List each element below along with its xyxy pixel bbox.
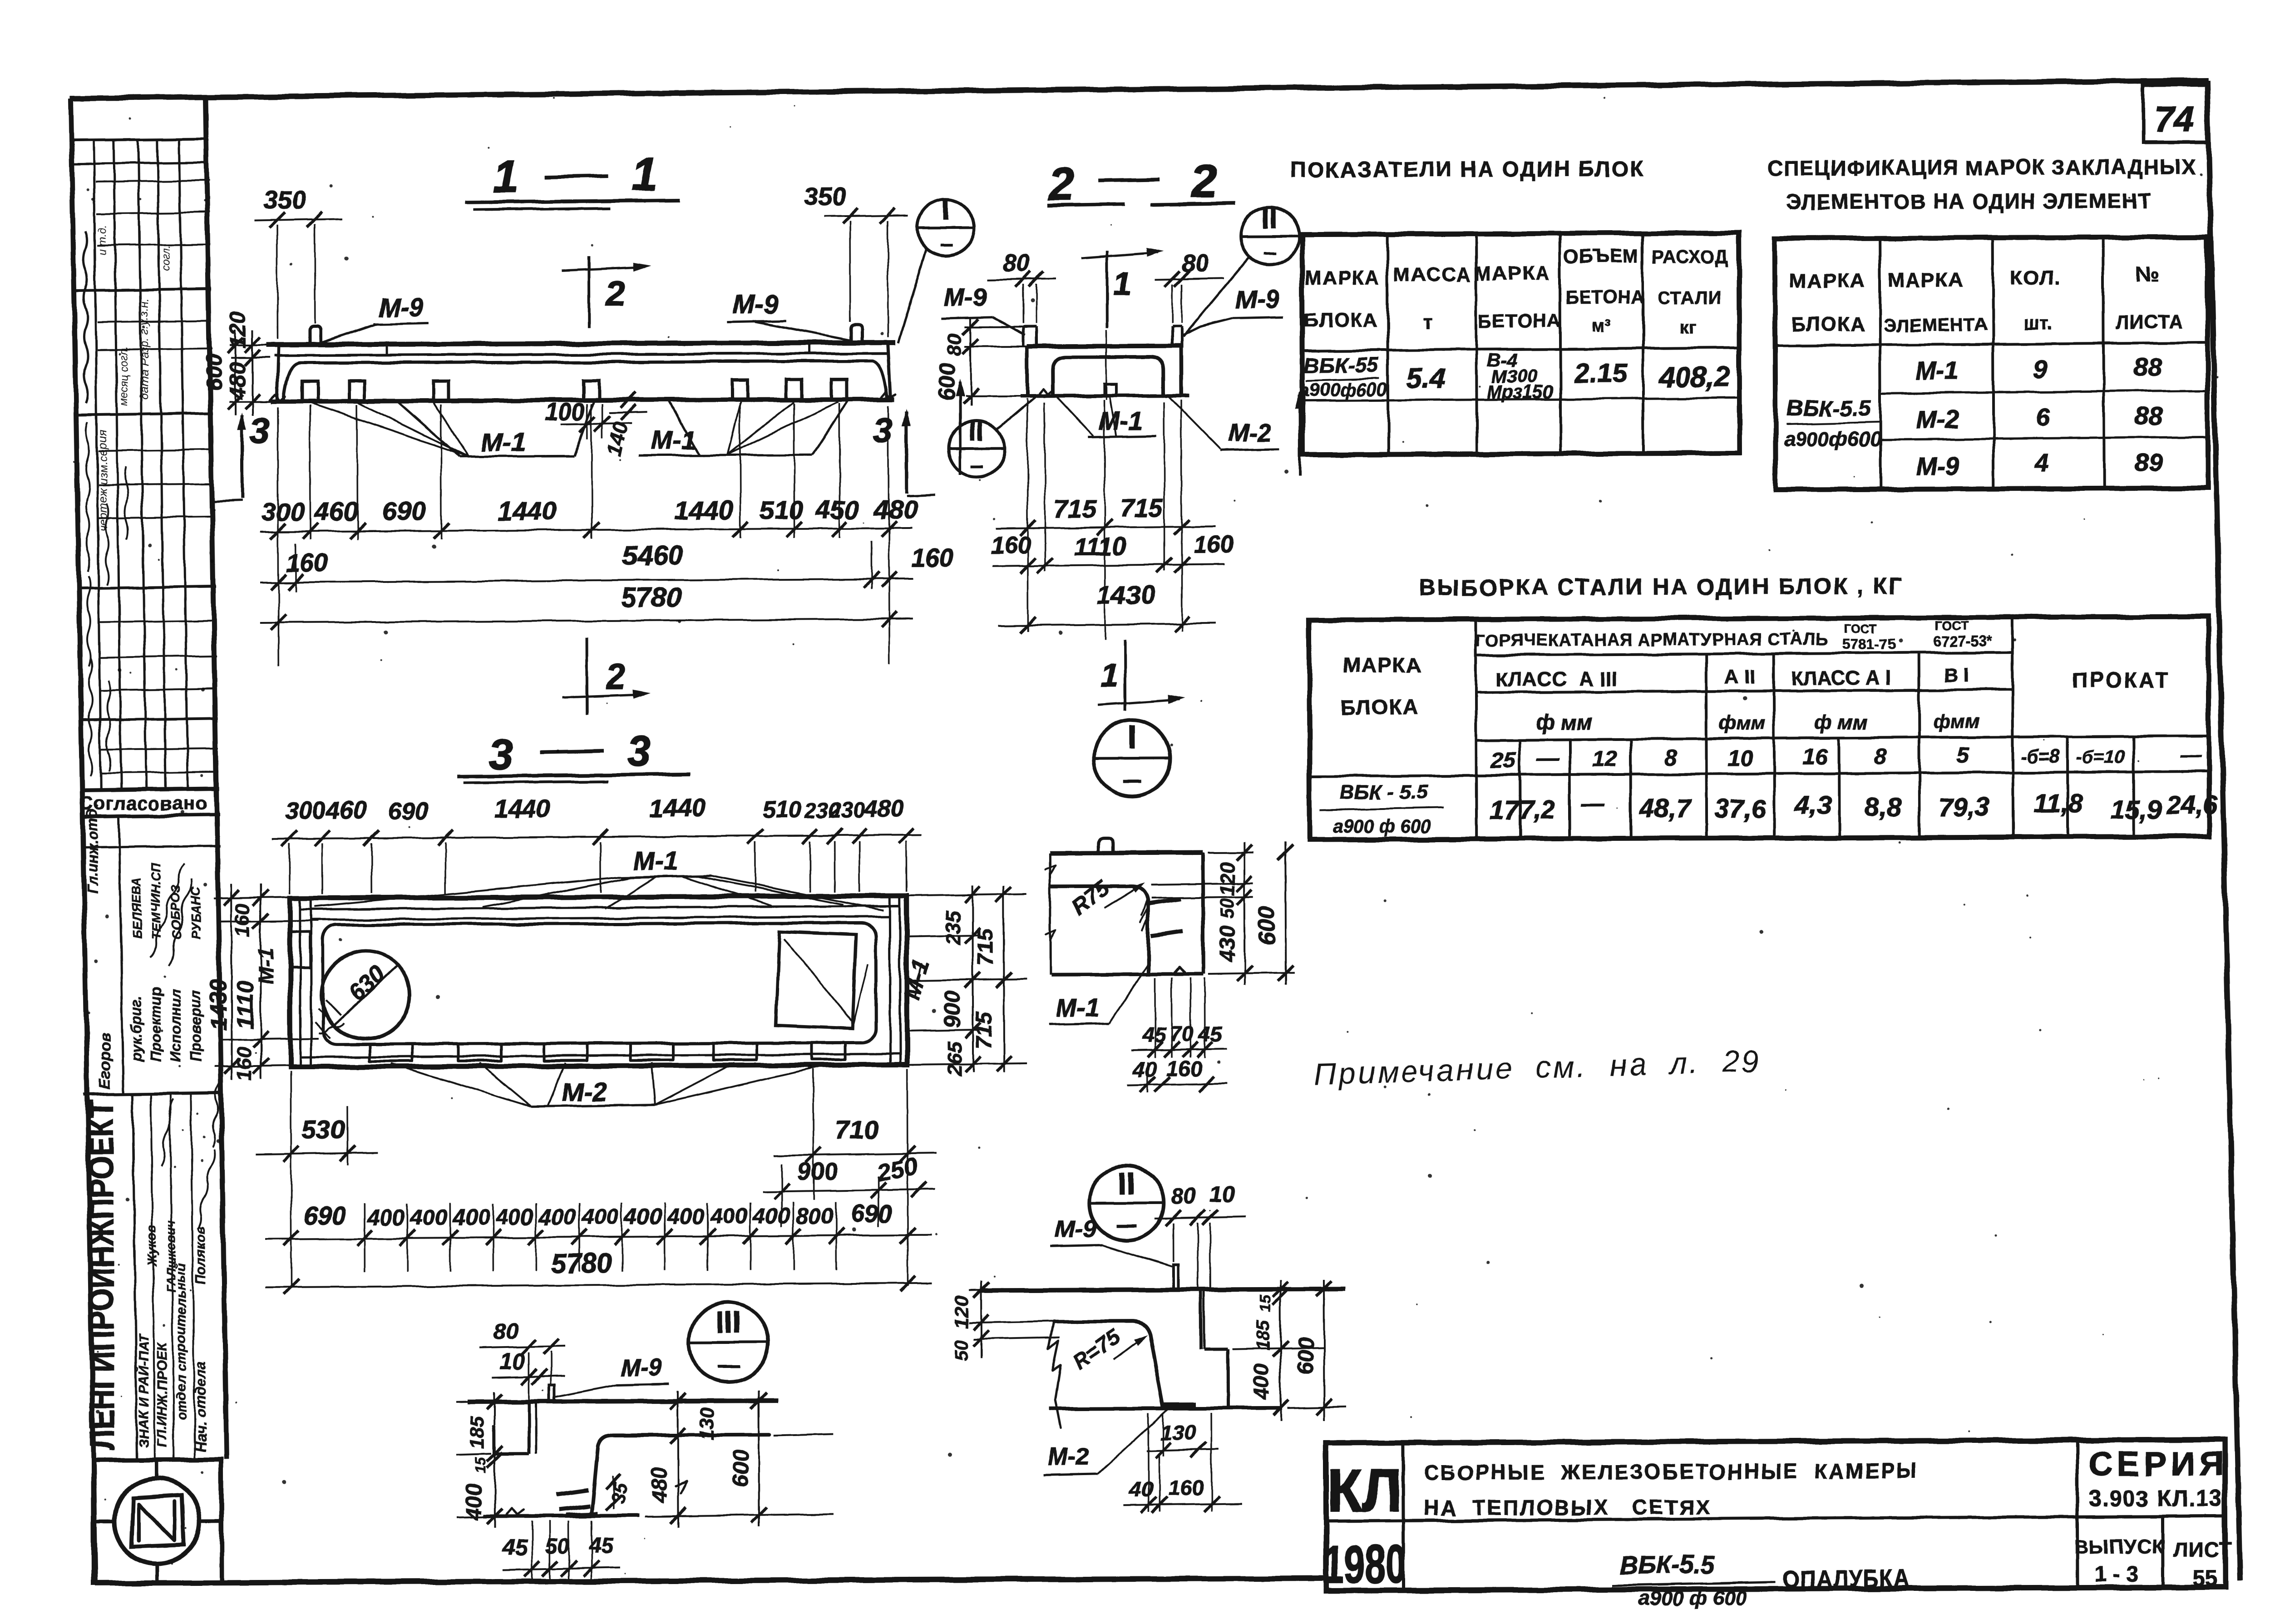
svg-text:400: 400 <box>1249 1364 1273 1400</box>
svg-text:160: 160 <box>233 1046 256 1081</box>
svg-text:М-9: М-9 <box>1236 286 1279 314</box>
svg-text:и т.д.: и т.д. <box>96 225 109 255</box>
svg-text:9: 9 <box>2033 355 2047 383</box>
svg-text:СБОРНЫЕ ЖЕЛЕЗОБЕТОННЫЕ КАМЕР: СБОРНЫЕ ЖЕЛЕЗОБЕТОННЫЕ КАМЕРЫ <box>1423 1459 1919 1484</box>
svg-text:СПЕЦИФИКАЦИЯ МАРОК ЗАКЛАДНЫХ: СПЕЦИФИКАЦИЯ МАРОК ЗАКЛАДНЫХ <box>1768 155 2196 180</box>
svg-text:40: 40 <box>1133 1057 1157 1081</box>
svg-text:600: 600 <box>934 363 959 400</box>
svg-text:185: 185 <box>466 1416 488 1449</box>
svg-text:45: 45 <box>502 1535 528 1560</box>
svg-text:460: 460 <box>314 498 358 527</box>
svg-text:89: 89 <box>2135 448 2163 476</box>
svg-text:160: 160 <box>1166 1056 1202 1081</box>
svg-text:ЭЛЕМЕНТОВ НА ОДИН ЭЛЕМЕНТ: ЭЛЕМЕНТОВ НА ОДИН ЭЛЕМЕНТ <box>1786 188 2152 213</box>
svg-text:фмм: фмм <box>1719 712 1765 734</box>
svg-text:БЕТОНА: БЕТОНА <box>1566 287 1645 308</box>
svg-text:Поляков: Поляков <box>193 1226 208 1284</box>
svg-text:М-1: М-1 <box>1056 993 1100 1022</box>
svg-text:79,3: 79,3 <box>1939 793 1990 822</box>
svg-text:5: 5 <box>1957 743 1969 768</box>
svg-text:715: 715 <box>973 928 998 966</box>
svg-text:СОБРОЗ: СОБРОЗ <box>169 885 183 939</box>
svg-text:КЛ: КЛ <box>1327 1457 1402 1524</box>
svg-text:1: 1 <box>632 148 657 200</box>
svg-text:м³: м³ <box>1592 316 1611 336</box>
svg-text:37,6: 37,6 <box>1715 795 1767 824</box>
svg-text:800: 800 <box>796 1204 833 1229</box>
svg-text:М-9: М-9 <box>733 290 778 319</box>
svg-text:55: 55 <box>2193 1567 2217 1591</box>
svg-text:СТАЛИ: СТАЛИ <box>1658 288 1722 308</box>
svg-text:М-9: М-9 <box>1916 452 1959 480</box>
svg-text:25: 25 <box>1490 748 1516 773</box>
svg-text:630: 630 <box>344 960 390 1006</box>
svg-text:400: 400 <box>410 1205 447 1230</box>
svg-text:1440: 1440 <box>675 496 733 525</box>
svg-text:88: 88 <box>2134 353 2162 381</box>
svg-text:1110: 1110 <box>232 980 258 1029</box>
svg-text:—: — <box>1536 745 1559 770</box>
svg-text:600: 600 <box>202 354 227 391</box>
svg-text:ЛИСТ: ЛИСТ <box>2173 1538 2232 1561</box>
svg-text:месяц согл.: месяц согл. <box>118 346 130 406</box>
svg-text:600: 600 <box>1293 1337 1318 1374</box>
svg-text:80: 80 <box>1171 1184 1196 1209</box>
svg-text:Примечание см. на л. 29: Примечание см. на л. 29 <box>1313 1044 1762 1092</box>
svg-text:ВЫПУСК: ВЫПУСК <box>2074 1535 2165 1558</box>
svg-text:Нач. отдела: Нач. отдела <box>192 1361 209 1452</box>
svg-text:ф мм: ф мм <box>1536 710 1593 734</box>
svg-text:3: 3 <box>627 727 651 775</box>
svg-text:ЗНАК И РАЙ-ПАТ: ЗНАК И РАЙ-ПАТ <box>135 1333 152 1448</box>
svg-text:50: 50 <box>1217 898 1238 919</box>
svg-text:I: I <box>1127 719 1136 755</box>
svg-text:74: 74 <box>2154 99 2194 139</box>
svg-text:БЕТОНА: БЕТОНА <box>1479 310 1561 331</box>
svg-text:Проверил: Проверил <box>187 990 204 1061</box>
svg-text:88: 88 <box>2135 402 2163 430</box>
svg-text:Гл.инж.отд: Гл.инж.отд <box>84 809 101 894</box>
svg-text:а900ф600: а900ф600 <box>1784 427 1881 451</box>
svg-text:R=75: R=75 <box>1068 1324 1125 1374</box>
svg-text:ПОКАЗАТЕЛИ НА ОДИН БЛОК: ПОКАЗАТЕЛИ НА ОДИН БЛОК <box>1291 157 1645 183</box>
svg-text:А II: А II <box>1724 666 1756 688</box>
svg-text:4: 4 <box>2034 449 2049 477</box>
svg-text:690: 690 <box>304 1202 346 1230</box>
svg-text:2.15: 2.15 <box>1574 358 1628 388</box>
svg-text:М-2: М-2 <box>562 1078 607 1107</box>
svg-text:400: 400 <box>538 1204 576 1229</box>
svg-text:ф мм: ф мм <box>1814 711 1868 734</box>
svg-text:КЛАСС А III: КЛАСС А III <box>1495 668 1618 691</box>
svg-text:-б=8: -б=8 <box>2021 745 2060 766</box>
svg-text:БЛОКА: БЛОКА <box>1791 313 1866 336</box>
svg-text:130: 130 <box>1160 1421 1196 1445</box>
svg-text:400: 400 <box>495 1204 533 1229</box>
svg-text:160: 160 <box>1194 531 1234 558</box>
svg-text:М-9: М-9 <box>944 283 987 311</box>
svg-text:120: 120 <box>951 1296 972 1328</box>
svg-text:400: 400 <box>710 1204 747 1229</box>
svg-text:400: 400 <box>367 1205 405 1230</box>
svg-text:120: 120 <box>1215 862 1239 896</box>
svg-text:15: 15 <box>1257 1294 1274 1312</box>
svg-text:11,8: 11,8 <box>2034 789 2083 818</box>
svg-text:10: 10 <box>1728 746 1753 771</box>
svg-text:160: 160 <box>286 549 328 577</box>
svg-text:45: 45 <box>588 1533 614 1558</box>
svg-text:МАССА: МАССА <box>1394 263 1472 286</box>
svg-text:М-9: М-9 <box>1055 1215 1097 1242</box>
svg-text:3.903 КЛ.13: 3.903 КЛ.13 <box>2088 1486 2223 1511</box>
svg-text:шт.: шт. <box>2023 312 2053 334</box>
svg-text:50: 50 <box>546 1534 570 1558</box>
svg-text:РУБАНС: РУБАНС <box>189 886 203 939</box>
svg-text:70: 70 <box>1170 1022 1194 1046</box>
svg-text:II: II <box>1118 1166 1135 1201</box>
svg-text:10: 10 <box>500 1349 525 1374</box>
svg-text:48,7: 48,7 <box>1639 794 1693 823</box>
svg-text:400: 400 <box>581 1204 619 1229</box>
svg-text:рук.бриг.: рук.бриг. <box>128 995 145 1062</box>
svg-text:Жуков: Жуков <box>144 1225 158 1267</box>
svg-text:МАРКА: МАРКА <box>1305 267 1381 289</box>
svg-text:690: 690 <box>850 1199 893 1228</box>
svg-text:Егоров: Егоров <box>96 1033 113 1089</box>
svg-text:265: 265 <box>943 1041 966 1076</box>
svg-text:1440: 1440 <box>649 794 706 822</box>
svg-text:М-1: М-1 <box>1099 407 1143 435</box>
svg-text:40: 40 <box>1129 1477 1153 1501</box>
svg-text:Мрз150: Мрз150 <box>1487 381 1554 403</box>
svg-text:900: 900 <box>797 1159 838 1185</box>
svg-text:6: 6 <box>2036 403 2050 431</box>
svg-text:R75: R75 <box>1066 875 1114 920</box>
svg-text:ПРОКАТ: ПРОКАТ <box>2073 668 2171 692</box>
svg-text:600: 600 <box>1253 906 1279 945</box>
svg-text:400: 400 <box>624 1204 661 1229</box>
svg-text:ГОСТ: ГОСТ <box>1934 618 1968 632</box>
svg-text:5781-75: 5781-75 <box>1842 636 1896 652</box>
svg-text:50: 50 <box>951 1339 972 1360</box>
svg-text:185: 185 <box>1253 1319 1273 1351</box>
svg-text:530: 530 <box>301 1115 345 1144</box>
svg-text:ВЫБОРКА СТАЛИ НА ОДИН БЛОК , К: ВЫБОРКА СТАЛИ НА ОДИН БЛОК , КГ <box>1419 573 1903 601</box>
svg-text:5780: 5780 <box>551 1248 612 1279</box>
svg-text:М-1: М-1 <box>481 428 526 457</box>
svg-text:М-9: М-9 <box>379 293 424 322</box>
svg-text:а900 ф 600: а900 ф 600 <box>1638 1586 1747 1610</box>
svg-text:т: т <box>1423 311 1433 333</box>
svg-text:1440: 1440 <box>498 497 557 526</box>
svg-text:300: 300 <box>285 797 326 824</box>
svg-text:Исполнил: Исполнил <box>167 989 184 1061</box>
svg-text:510: 510 <box>763 796 802 822</box>
svg-text:5780: 5780 <box>621 582 681 613</box>
svg-text:4,3: 4,3 <box>1795 791 1832 820</box>
svg-text:Проектир: Проектир <box>147 987 164 1061</box>
svg-text:400: 400 <box>452 1205 490 1230</box>
svg-text:ЭЛЕМЕНТА: ЭЛЕМЕНТА <box>1884 315 1988 336</box>
svg-text:160: 160 <box>990 532 1031 559</box>
svg-text:1 - 3: 1 - 3 <box>2094 1563 2138 1587</box>
svg-text:ГАЛшкевич: ГАЛшкевич <box>163 1221 178 1293</box>
svg-text:III: III <box>716 1305 741 1339</box>
svg-text:М-1: М-1 <box>633 847 679 876</box>
svg-text:300: 300 <box>261 498 305 527</box>
svg-text:235: 235 <box>942 910 965 945</box>
svg-text:715: 715 <box>1054 495 1096 523</box>
svg-text:ВБК-5.5: ВБК-5.5 <box>1619 1550 1715 1579</box>
svg-text:2: 2 <box>1190 155 1217 207</box>
svg-text:120: 120 <box>226 311 251 348</box>
svg-text:408,2: 408,2 <box>1658 361 1730 393</box>
svg-text:М-1: М-1 <box>651 426 696 455</box>
svg-text:80: 80 <box>943 333 966 356</box>
svg-text:350: 350 <box>804 183 846 211</box>
svg-text:8: 8 <box>1665 745 1678 770</box>
svg-text:МАРКА: МАРКА <box>1343 653 1422 677</box>
svg-text:710: 710 <box>835 1116 879 1145</box>
svg-text:160: 160 <box>231 903 254 938</box>
svg-text:ЛЕНГИПРОИНЖПРОЕКТ: ЛЕНГИПРОИНЖПРОЕКТ <box>82 1101 122 1450</box>
svg-text:460: 460 <box>326 797 367 824</box>
svg-text:КЛАСС А I: КЛАСС А I <box>1791 667 1891 690</box>
svg-text:МАРКА: МАРКА <box>1888 269 1964 291</box>
svg-text:690: 690 <box>388 798 429 824</box>
svg-text:450: 450 <box>815 495 860 524</box>
svg-text:6727-53*: 6727-53* <box>1934 633 1993 650</box>
svg-text:160: 160 <box>911 544 953 572</box>
svg-text:I: I <box>942 193 950 226</box>
svg-text:3: 3 <box>489 730 513 778</box>
svg-text:М-2: М-2 <box>1916 405 1959 434</box>
svg-text:М-2: М-2 <box>1228 418 1272 446</box>
svg-text:5460: 5460 <box>622 540 683 571</box>
svg-text:3: 3 <box>873 410 893 450</box>
svg-text:МАРКА: МАРКА <box>1790 269 1865 292</box>
svg-text:№: № <box>2136 262 2159 286</box>
svg-text:ВБК - 5.5: ВБК - 5.5 <box>1340 780 1429 804</box>
svg-text:600: 600 <box>728 1449 753 1486</box>
svg-text:ОПАЛУБКА: ОПАЛУБКА <box>1782 1564 1910 1593</box>
svg-text:80: 80 <box>493 1319 518 1344</box>
svg-text:II: II <box>969 416 984 446</box>
svg-text:1: 1 <box>493 150 519 202</box>
svg-text:КОЛ.: КОЛ. <box>2011 267 2061 289</box>
svg-text:510: 510 <box>760 496 804 525</box>
svg-text:ЛИСТА: ЛИСТА <box>2116 311 2183 333</box>
svg-text:400: 400 <box>752 1204 790 1229</box>
svg-text:8: 8 <box>1874 744 1887 769</box>
svg-text:480: 480 <box>873 495 918 524</box>
svg-text:1440: 1440 <box>494 795 550 823</box>
svg-text:3: 3 <box>250 410 270 450</box>
svg-text:480: 480 <box>647 1468 671 1504</box>
svg-text:715: 715 <box>1120 494 1163 522</box>
svg-text:кг: кг <box>1680 317 1697 337</box>
svg-text:ОБЪЕМ: ОБЪЕМ <box>1564 245 1639 267</box>
svg-text:МАРКА: МАРКА <box>1475 262 1550 285</box>
svg-text:16: 16 <box>1803 744 1828 769</box>
svg-text:1430: 1430 <box>205 978 231 1031</box>
svg-text:15: 15 <box>472 1457 489 1474</box>
svg-text:М-9: М-9 <box>621 1354 663 1381</box>
svg-text:а900ф600: а900ф600 <box>1299 379 1387 400</box>
svg-text:400: 400 <box>666 1204 704 1229</box>
svg-text:М-1: М-1 <box>253 948 277 984</box>
svg-text:2: 2 <box>1047 158 1074 210</box>
svg-text:160: 160 <box>1168 1476 1204 1500</box>
svg-text:БЛОКА: БЛОКА <box>1304 309 1378 332</box>
svg-text:—: — <box>2181 743 2202 766</box>
svg-text:715: 715 <box>972 1012 997 1049</box>
svg-text:II: II <box>1262 203 1278 234</box>
svg-text:350: 350 <box>263 186 306 214</box>
svg-text:1980: 1980 <box>1323 1535 1406 1595</box>
svg-text:690: 690 <box>382 497 426 526</box>
svg-text:1: 1 <box>1100 657 1119 693</box>
svg-text:480: 480 <box>225 361 250 399</box>
svg-text:СЕРИЯ: СЕРИЯ <box>2088 1445 2228 1483</box>
svg-text:15,9: 15,9 <box>2111 795 2162 824</box>
svg-text:1430: 1430 <box>1097 581 1155 610</box>
svg-text:дата Разр. г.у.з.н.: дата Разр. г.у.з.н. <box>137 298 151 400</box>
svg-text:12: 12 <box>1592 746 1617 771</box>
svg-text:фмм: фмм <box>1934 711 1979 732</box>
svg-text:480: 480 <box>864 795 904 821</box>
svg-text:а900 ф 600: а900 ф 600 <box>1333 816 1431 837</box>
svg-text:177,2: 177,2 <box>1490 795 1556 825</box>
svg-text:1110: 1110 <box>1074 532 1127 560</box>
svg-text:130: 130 <box>696 1407 718 1440</box>
svg-text:ГЛ.ИНЖ.ПРОЕК: ГЛ.ИНЖ.ПРОЕК <box>154 1342 170 1447</box>
svg-text:24,6: 24,6 <box>2166 790 2218 819</box>
svg-text:80: 80 <box>1002 250 1030 276</box>
svg-text:900: 900 <box>940 991 965 1028</box>
svg-text:430: 430 <box>1215 926 1239 963</box>
svg-text:230: 230 <box>829 798 866 822</box>
svg-text:ВБК-5.5: ВБК-5.5 <box>1787 396 1871 421</box>
svg-text:ВБК-55: ВБК-55 <box>1304 353 1379 377</box>
svg-text:400: 400 <box>462 1484 486 1520</box>
svg-text:ГОРЯЧЕКАТАНАЯ АРМАТУРНАЯ СТАЛЬ: ГОРЯЧЕКАТАНАЯ АРМАТУРНАЯ СТАЛЬ <box>1475 630 1829 650</box>
svg-text:согл.: согл. <box>160 245 172 271</box>
svg-text:45: 45 <box>1198 1022 1223 1046</box>
svg-text:10: 10 <box>1209 1182 1234 1207</box>
svg-text:М-1: М-1 <box>1915 356 1959 385</box>
svg-text:—: — <box>1580 790 1604 816</box>
svg-text:140: 140 <box>602 420 632 458</box>
svg-text:ГОСТ: ГОСТ <box>1844 622 1877 636</box>
svg-text:РАСХОД: РАСХОД <box>1652 247 1728 267</box>
svg-text:БЕЛЯЕВА: БЕЛЯЕВА <box>130 878 144 939</box>
svg-text:-б=10: -б=10 <box>2076 746 2125 767</box>
svg-text:8,8: 8,8 <box>1865 793 1901 822</box>
svg-text:БЛОКА: БЛОКА <box>1341 695 1418 719</box>
svg-text:100: 100 <box>544 399 585 426</box>
svg-text:45: 45 <box>1142 1023 1166 1047</box>
svg-text:М-2: М-2 <box>1047 1443 1090 1470</box>
svg-text:5.4: 5.4 <box>1406 362 1446 394</box>
svg-text:2: 2 <box>605 274 625 313</box>
svg-text:НА ТЕПЛОВЫХ СЕТЯХ: НА ТЕПЛОВЫХ СЕТЯХ <box>1424 1495 1712 1520</box>
svg-text:В I: В I <box>1944 664 1969 686</box>
svg-text:2: 2 <box>605 657 626 696</box>
svg-text:250: 250 <box>874 1153 920 1188</box>
svg-text:1: 1 <box>1113 266 1131 302</box>
